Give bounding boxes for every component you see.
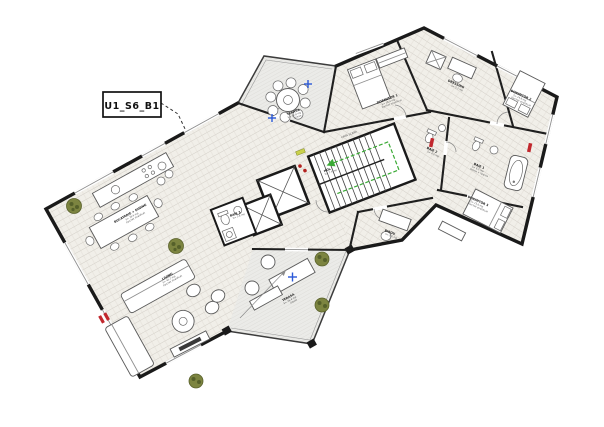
unit-tag: U1_S6_B1 [103, 92, 186, 131]
outdoor-chair-2 [261, 255, 275, 269]
outdoor-chair-1 [245, 281, 259, 295]
floorplan-drawing: CASA SCARII [0, 0, 604, 427]
bath2-sink [439, 125, 446, 132]
plant-1 [67, 199, 82, 214]
plant-2 [169, 239, 184, 254]
unit-tag-leader [161, 103, 186, 131]
wardrobe-dorm3 [438, 221, 465, 241]
unit-tag-label: U1_S6_B1 [104, 101, 159, 112]
plant-5 [189, 374, 203, 388]
plant-4 [315, 298, 329, 312]
floorplan-page: CASA SCARII [0, 0, 604, 427]
bath1-sink [490, 146, 498, 154]
plant-3 [315, 252, 329, 266]
